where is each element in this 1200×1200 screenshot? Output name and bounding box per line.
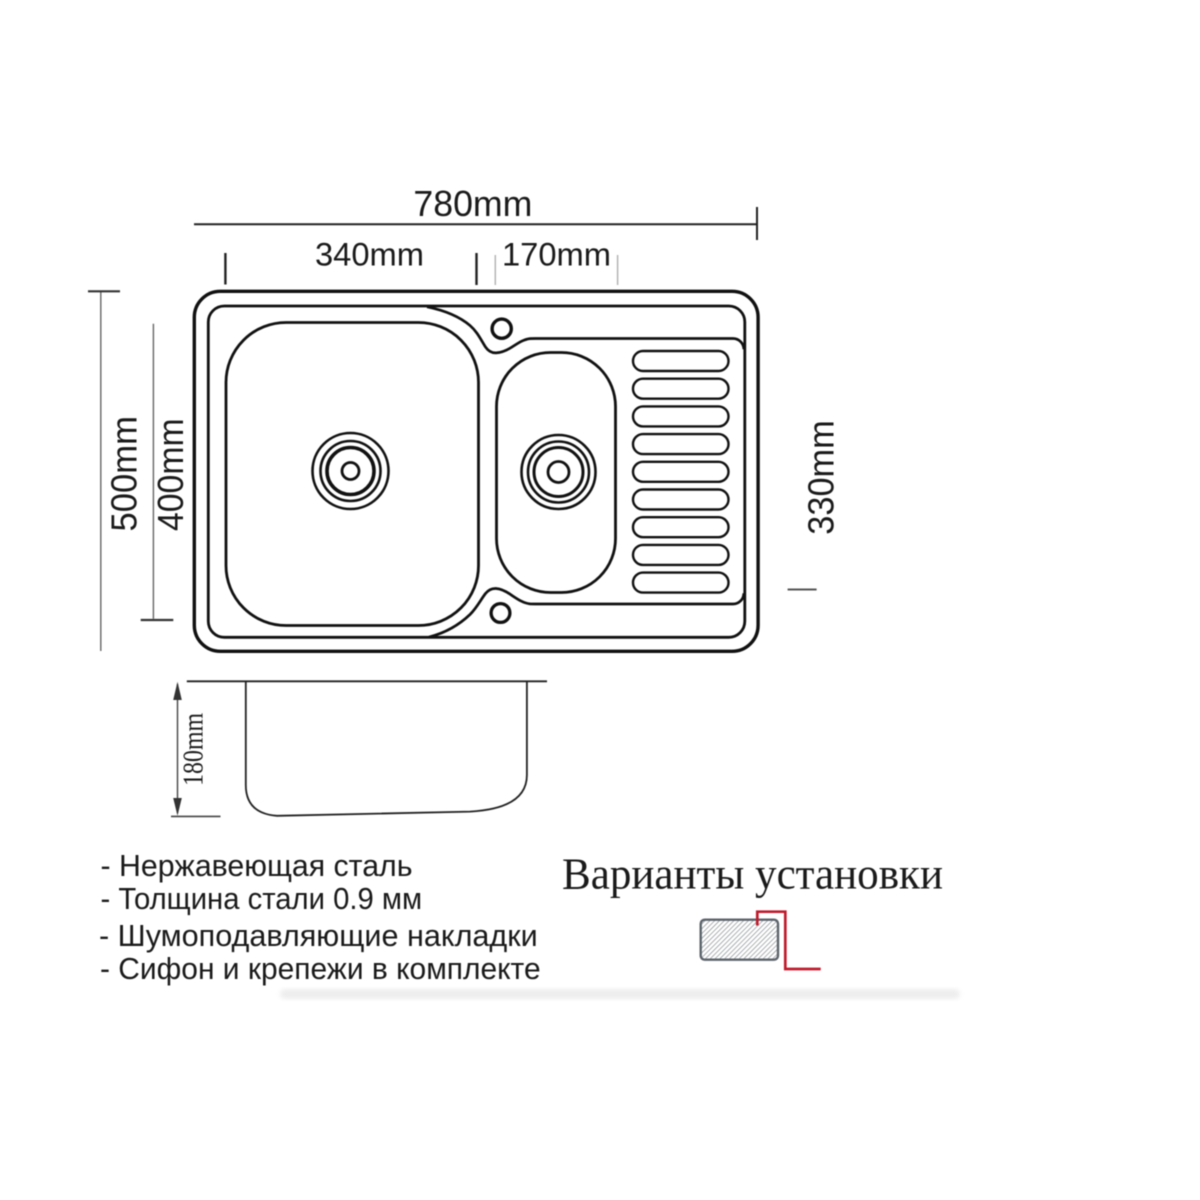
svg-text:- Шумоподавляющие накладки: - Шумоподавляющие накладки	[99, 919, 538, 953]
svg-text:400mm: 400mm	[150, 418, 191, 531]
svg-text:180mm: 180mm	[176, 713, 209, 786]
svg-text:500mm: 500mm	[103, 416, 144, 532]
svg-text:Варианты установки: Варианты установки	[562, 849, 943, 899]
svg-text:170mm: 170mm	[502, 235, 611, 272]
svg-text:- Толщина стали 0.9 мм: - Толщина стали 0.9 мм	[101, 882, 423, 916]
svg-text:780mm: 780mm	[413, 184, 532, 224]
svg-text:- Нержавеющая сталь: - Нержавеющая сталь	[101, 849, 413, 883]
svg-text:- Сифон и крепежи в комплекте: - Сифон и крепежи в комплекте	[100, 952, 541, 986]
svg-text:340mm: 340mm	[315, 235, 424, 272]
svg-text:330mm: 330mm	[801, 420, 842, 535]
